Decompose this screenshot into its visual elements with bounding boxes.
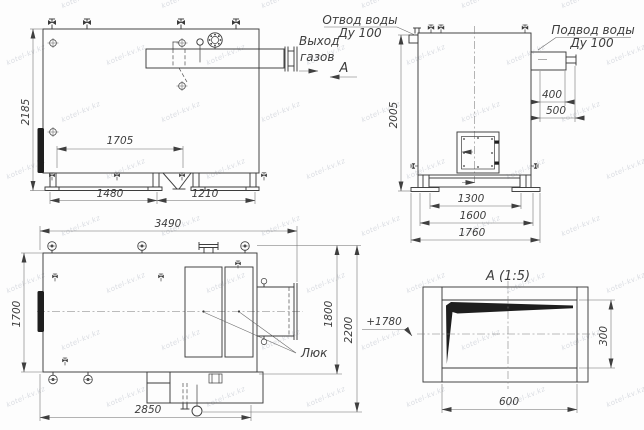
dim-text: 1705 [107, 135, 134, 147]
door-latch-icon [495, 141, 500, 144]
valve-icon [52, 274, 58, 281]
drain-valve-icon [531, 163, 538, 169]
burner-plate-icon [38, 291, 45, 332]
water-outlet-label: Ду 100 [337, 26, 382, 40]
dim-base-inner: 1300 [430, 193, 521, 209]
dim-text: 300 [598, 326, 610, 346]
dim-text: 1600 [460, 210, 487, 222]
hatch-label: Люк [300, 346, 328, 360]
dim-text: 2850 [135, 404, 162, 416]
gas-outlet-label: Выход [299, 34, 339, 48]
valve-icon [158, 274, 164, 281]
valve-icon [438, 25, 444, 33]
damper-hidden-lines [173, 42, 187, 82]
water-inlet-label: Подвод воды [551, 23, 634, 37]
drain-valve-icon [261, 173, 267, 180]
drain-valve-icon [411, 163, 418, 169]
dim-plan-length: 3490 [40, 218, 297, 282]
water-inlet-label: Ду 100 [569, 36, 614, 50]
dim-text: 400 [542, 89, 562, 101]
chimney-stub [199, 243, 218, 254]
valve-icon [177, 19, 185, 29]
support-base [411, 175, 540, 192]
section-cut-wedge [446, 302, 573, 364]
dim-text: 3490 [155, 218, 182, 230]
drain-valve-icon [114, 173, 120, 180]
dim-text: 1800 [323, 300, 335, 327]
dim-front-inner-span: 1705 [57, 135, 183, 168]
view-a-label: А [339, 61, 349, 76]
support-skids [45, 173, 259, 191]
duct-top-flange-icon [208, 33, 222, 49]
valve-icon [232, 19, 240, 29]
dim-text: 1700 [11, 300, 23, 327]
datum-target-icon [177, 81, 188, 91]
water-inlet-box [531, 52, 576, 70]
valve-icon [62, 358, 68, 365]
detail-title: А (1:5) [485, 269, 530, 284]
dim-text: 2200 [343, 316, 355, 343]
detail-view-a: А (1:5) 300 600 [417, 269, 615, 413]
dim-text: 500 [546, 105, 566, 117]
gas-outlet-duct [146, 47, 297, 71]
water-inlet-callout: Подвод воды Ду 100 [538, 23, 635, 50]
dim-text: 2005 [388, 101, 400, 128]
front-view: 2185 1705 1480 1210 Выход газов [20, 19, 339, 204]
sensor-port-icon [197, 39, 203, 62]
datum-target-icon [177, 38, 188, 48]
lower-extension [147, 372, 263, 416]
boiler-drawing-svg: 2185 1705 1480 1210 Выход газов [0, 0, 644, 430]
dim-text: 600 [499, 396, 519, 408]
top-view: Люк [11, 218, 412, 421]
datum-target-icon [48, 38, 59, 48]
top-nozzle-icon [48, 242, 250, 384]
dim-text: 1300 [458, 193, 485, 205]
drain-port-icon [192, 406, 202, 416]
dim-nozzle-500: 500 [532, 105, 583, 118]
technical-drawing-sheet: kotel-kv.kzkotel-kv.kzkotel-kv.kzkotel-k… [0, 0, 644, 430]
drain-valve-icon [179, 173, 185, 180]
door-latch-icon [495, 162, 500, 165]
datum-target-icon [48, 127, 59, 137]
dim-text: 2185 [20, 98, 32, 125]
dim-detail-width: 600 [442, 384, 577, 413]
dim-text: 1760 [459, 227, 486, 239]
valve-icon [428, 25, 434, 33]
water-outlet-label: Отвод воды [322, 13, 397, 27]
furnace-door [457, 132, 499, 173]
dim-text: 1210 [192, 188, 219, 200]
burner-plate-icon [38, 128, 45, 173]
water-outlet-flange [409, 28, 421, 43]
elevation-text: +1780 [366, 316, 402, 328]
boiler-body-front [43, 29, 259, 173]
side-view: 2005 400 500 1300 [322, 13, 634, 243]
valve-icon [83, 19, 91, 29]
dim-plan-offset-b: 2200 [203, 246, 362, 413]
gas-outlet-label: газов [300, 50, 334, 64]
dim-side-height: 2005 [388, 35, 411, 191]
dim-text: 1480 [97, 188, 124, 200]
valve-icon [48, 19, 56, 29]
valve-icon [522, 25, 528, 33]
elevation-mark: +1780 [362, 316, 412, 336]
